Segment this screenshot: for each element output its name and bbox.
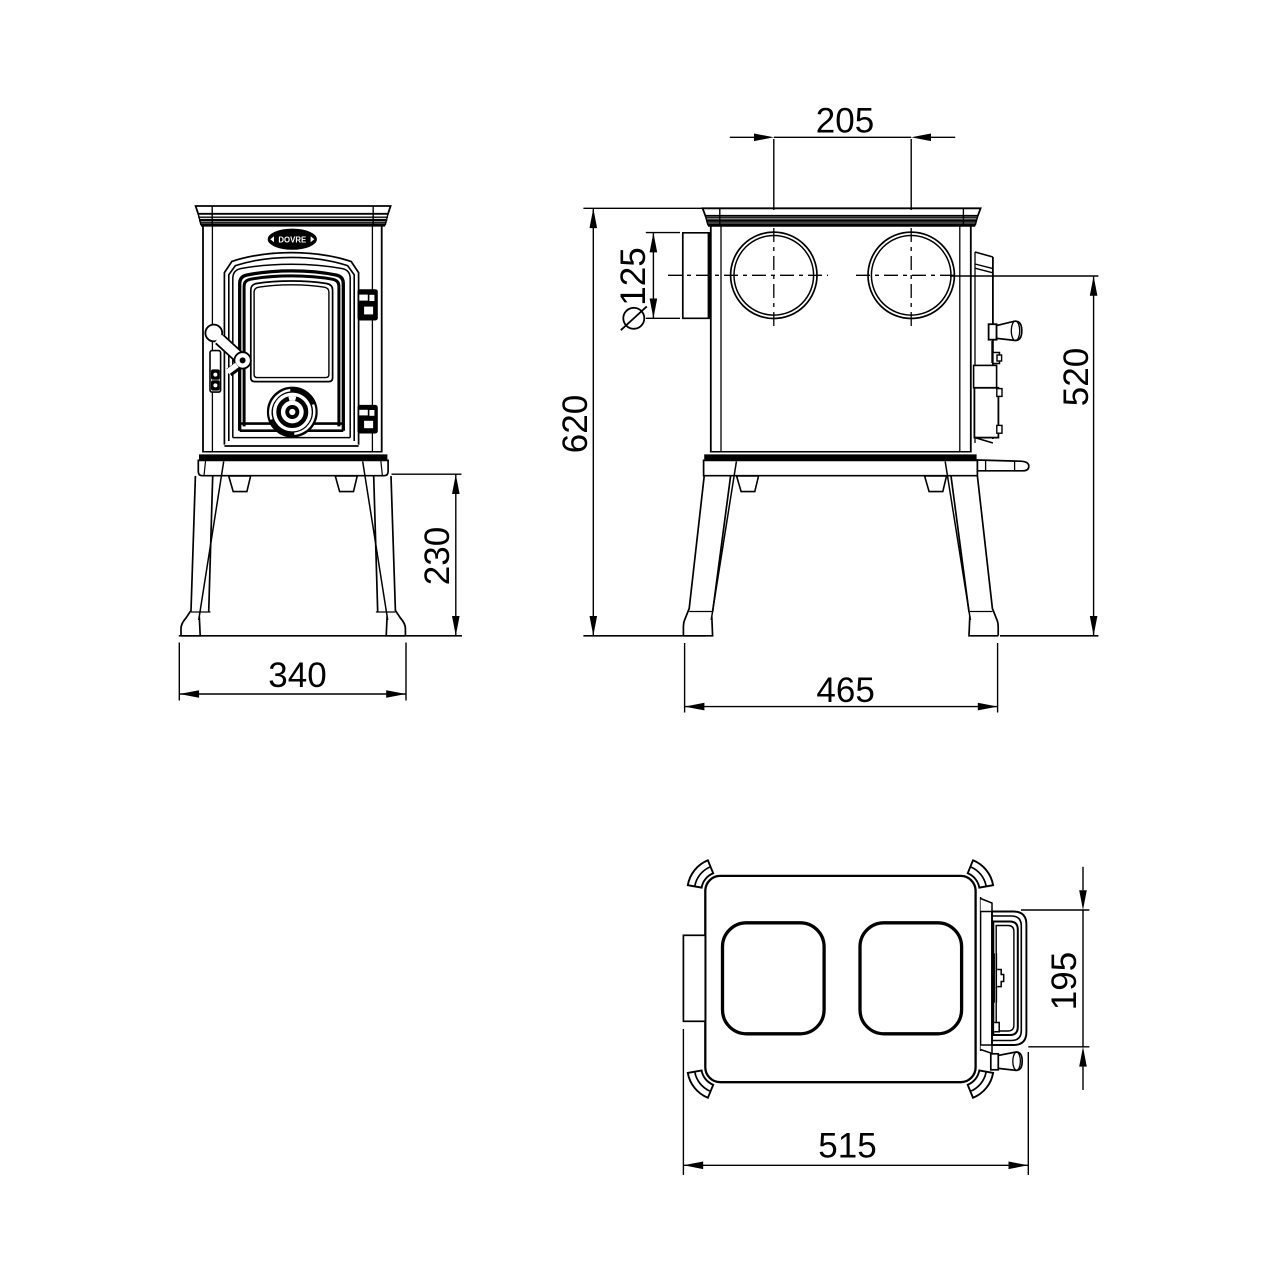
svg-text:340: 340 (268, 656, 326, 695)
svg-text:205: 205 (816, 101, 874, 140)
svg-text:195: 195 (1045, 952, 1084, 1010)
svg-text:520: 520 (1057, 348, 1096, 406)
svg-text:515: 515 (818, 1127, 876, 1166)
svg-text:125: 125 (614, 247, 653, 305)
svg-text:620: 620 (556, 395, 595, 453)
svg-text:DOVRE: DOVRE (278, 235, 306, 244)
svg-text:465: 465 (816, 671, 874, 710)
svg-text:230: 230 (418, 527, 457, 585)
